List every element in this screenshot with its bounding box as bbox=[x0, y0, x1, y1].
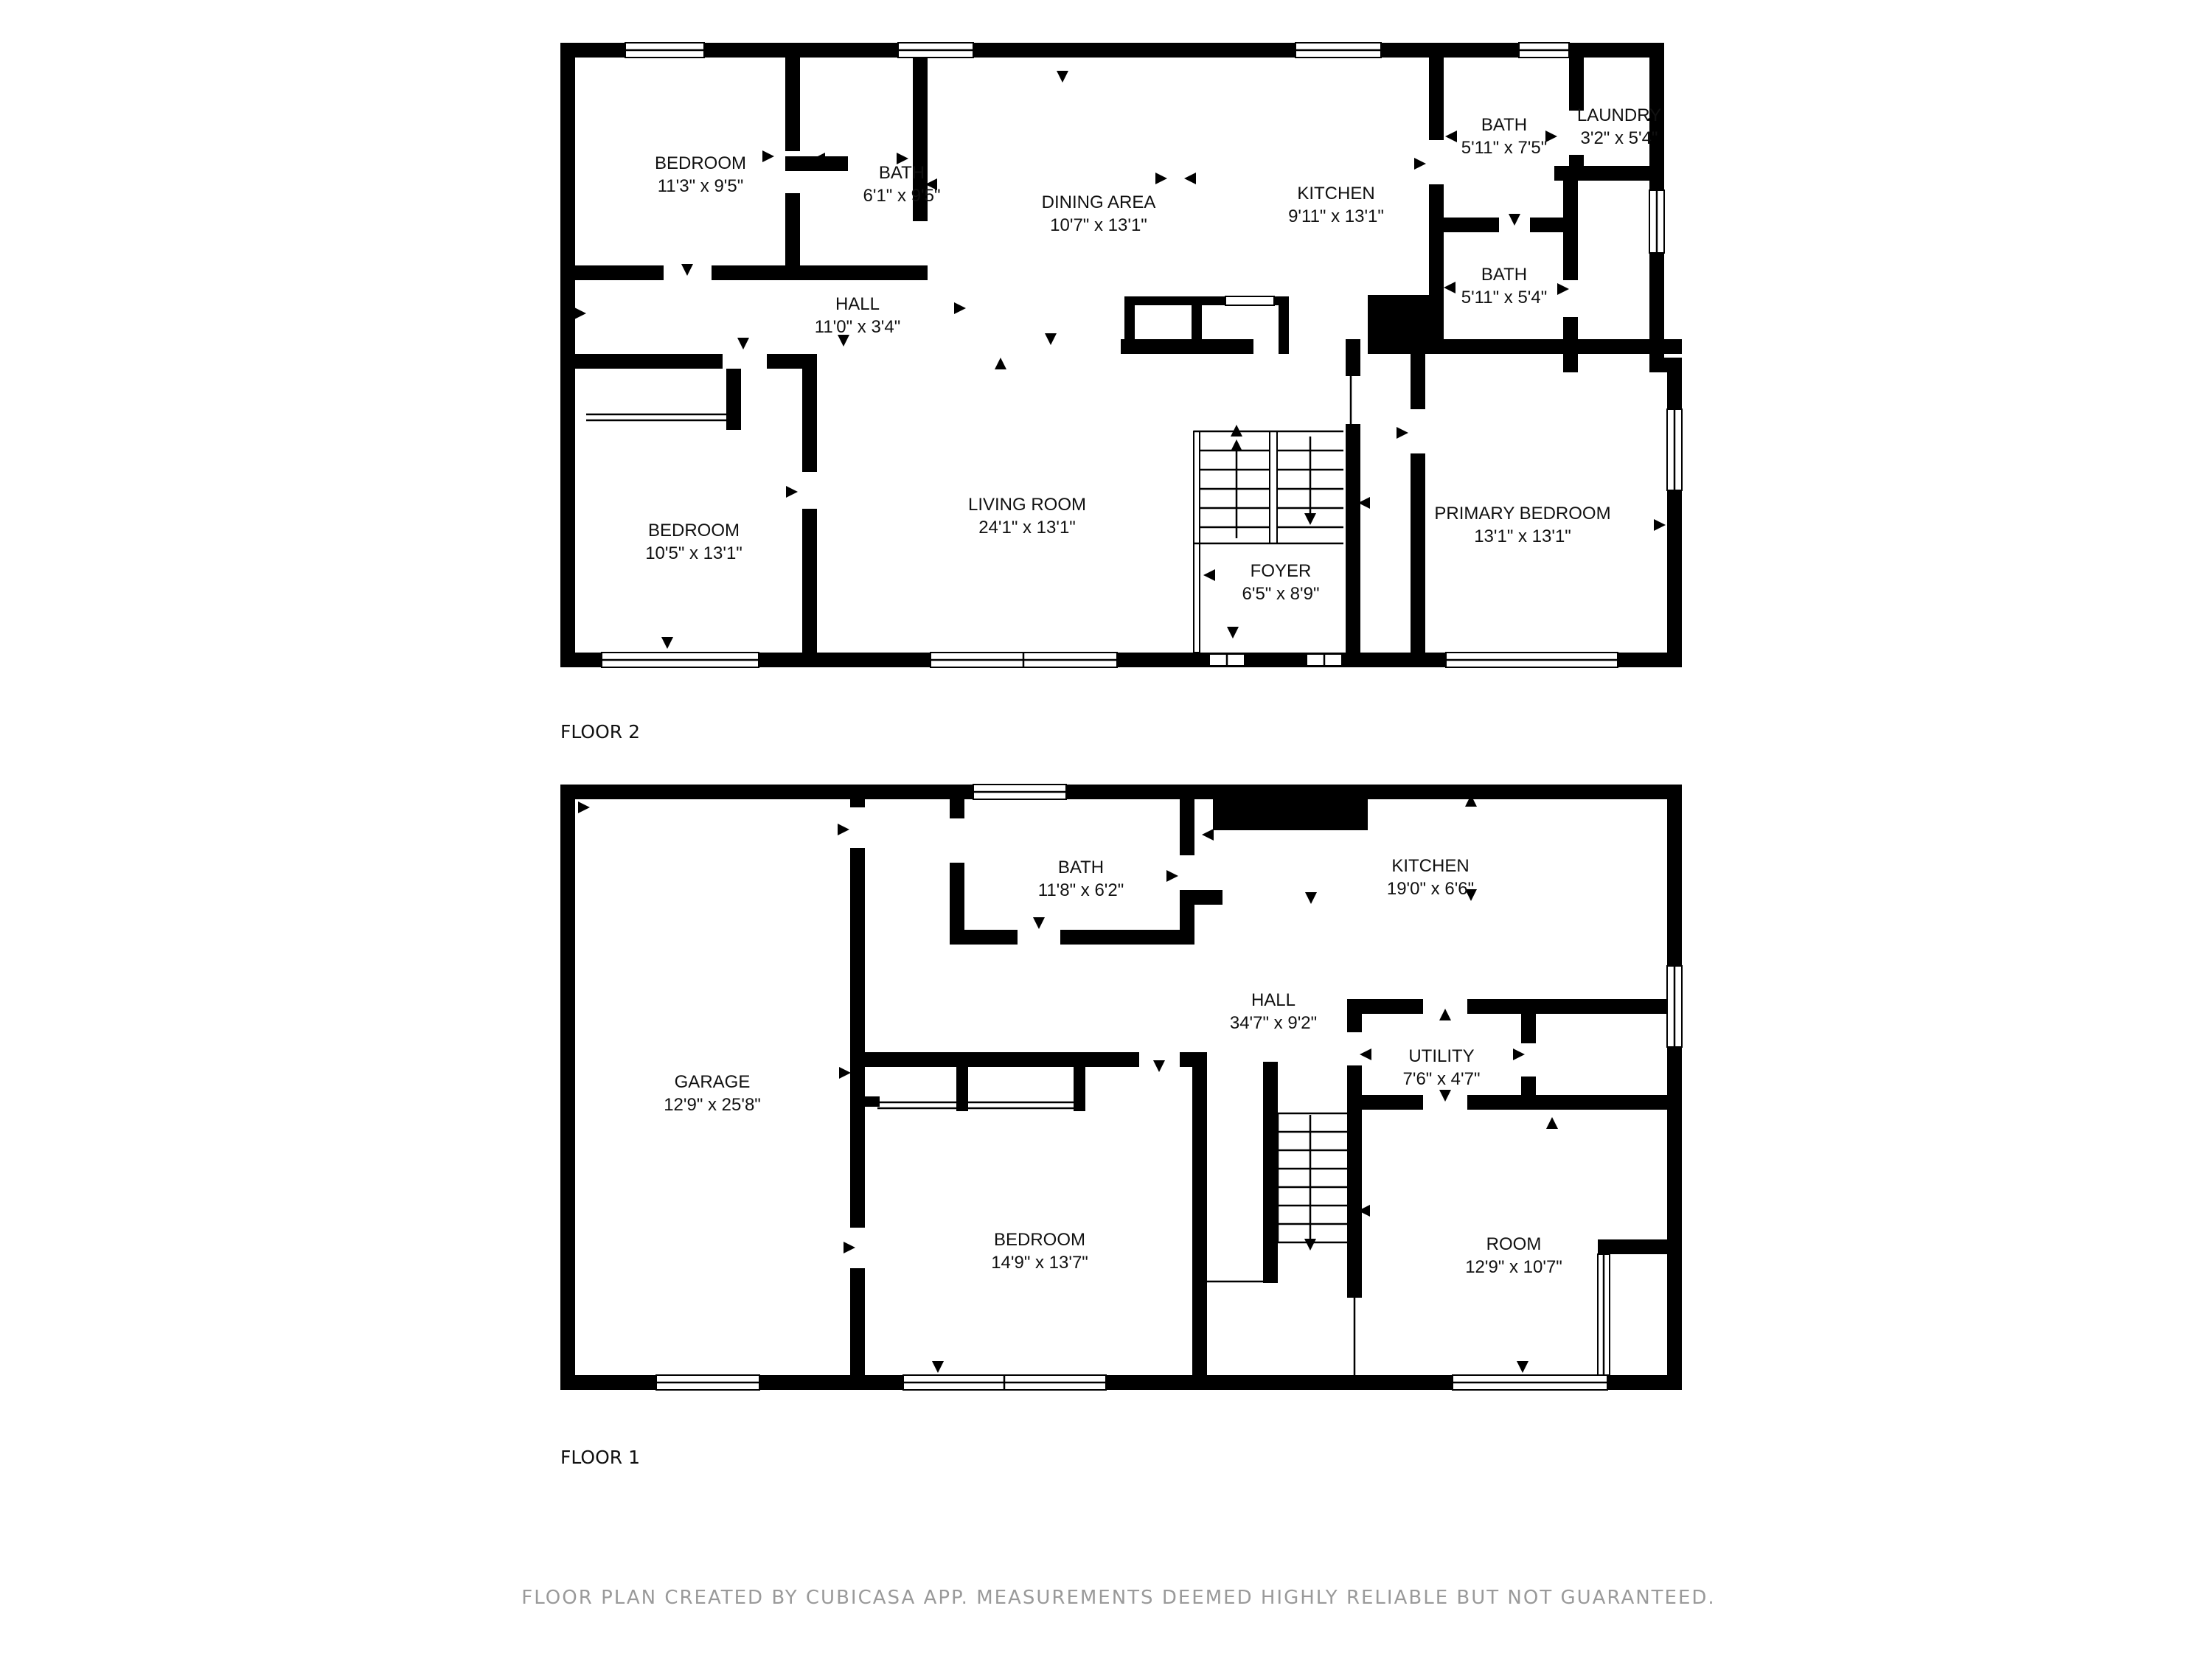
door-arrow-icon bbox=[1445, 131, 1457, 142]
window bbox=[1649, 190, 1664, 253]
door-arrow-icon bbox=[1513, 1048, 1525, 1060]
floor1-chimney-block bbox=[1213, 785, 1368, 830]
room-label-floor1-room: ROOM 12'9" x 10'7" bbox=[1465, 1233, 1562, 1279]
window bbox=[1295, 43, 1381, 58]
room-dims: 11'0" x 3'4" bbox=[815, 316, 901, 338]
window bbox=[898, 43, 973, 58]
room-dims: 9'11" x 13'1" bbox=[1288, 205, 1384, 228]
door-arrow-icon bbox=[1414, 158, 1426, 170]
door-arrow-icon bbox=[762, 150, 774, 162]
floor2-title: FLOOR 2 bbox=[560, 721, 640, 742]
closet-opening bbox=[1225, 296, 1274, 305]
door-arrow-icon bbox=[1184, 173, 1196, 184]
room-label-floor1-garage: GARAGE 12'9" x 25'8" bbox=[664, 1071, 761, 1116]
door-arrow-icon bbox=[1444, 282, 1455, 293]
room-label-floor2-bedroom-2: BEDROOM 10'5" x 13'1" bbox=[645, 519, 742, 565]
room-label-floor1-bath: BATH 11'8" x 6'2" bbox=[1038, 856, 1124, 902]
room-label-floor2-dining-area: DINING AREA 10'7" x 13'1" bbox=[1042, 191, 1156, 237]
window bbox=[1667, 409, 1682, 490]
room-label-floor2-laundry: LAUNDRY 3'2" x 5'4" bbox=[1577, 104, 1661, 150]
door-arrow-icon bbox=[1439, 1090, 1451, 1102]
room-name: HALL bbox=[815, 293, 901, 316]
room-name: BEDROOM bbox=[645, 519, 742, 542]
door-arrow-icon bbox=[932, 1361, 944, 1373]
door-arrow-icon bbox=[1305, 892, 1317, 904]
door-arrow-icon bbox=[1397, 427, 1408, 439]
room-label-floor2-primary-bedroom: PRIMARY BEDROOM 13'1" x 13'1" bbox=[1434, 502, 1610, 548]
room-name: LIVING ROOM bbox=[968, 493, 1086, 516]
window bbox=[1453, 1375, 1607, 1390]
room-label-floor1-utility: UTILITY 7'6" x 4'7" bbox=[1403, 1045, 1481, 1091]
room-name: ROOM bbox=[1465, 1233, 1562, 1256]
room-name: GARAGE bbox=[664, 1071, 761, 1093]
door-arrow-icon bbox=[838, 824, 849, 835]
room-dims: 6'5" x 8'9" bbox=[1242, 582, 1320, 605]
door-arrow-icon bbox=[1557, 283, 1569, 295]
room-dims: 10'7" x 13'1" bbox=[1042, 214, 1156, 237]
door-arrow-icon bbox=[1360, 1048, 1371, 1060]
room-label-floor2-hall: HALL 11'0" x 3'4" bbox=[815, 293, 901, 338]
stairs-down-arrow-icon bbox=[1304, 513, 1316, 525]
room-label-floor1-hall: HALL 34'7" x 9'2" bbox=[1230, 989, 1317, 1034]
window bbox=[625, 43, 704, 58]
floor-plan-page: BEDROOM 11'3" x 9'5" BATH 6'1" x 9'5" DI… bbox=[0, 0, 2212, 1659]
garage-door-opening bbox=[656, 1375, 759, 1390]
room-dims: 19'0" x 6'6" bbox=[1387, 877, 1474, 900]
room-dims: 10'5" x 13'1" bbox=[645, 542, 742, 565]
floor-plan-drawing bbox=[0, 0, 2212, 1659]
door-arrow-icon bbox=[737, 338, 749, 349]
room-name: BEDROOM bbox=[655, 152, 746, 175]
room-name: DINING AREA bbox=[1042, 191, 1156, 214]
door-arrow-icon bbox=[839, 1067, 851, 1079]
room-dims: 12'9" x 25'8" bbox=[664, 1093, 761, 1116]
door-arrow-icon bbox=[1203, 569, 1215, 581]
room-name: BEDROOM bbox=[991, 1228, 1088, 1251]
window bbox=[903, 1375, 1106, 1390]
room-label-floor2-bedroom-1: BEDROOM 11'3" x 9'5" bbox=[655, 152, 746, 198]
room-dims: 13'1" x 13'1" bbox=[1434, 525, 1610, 548]
room-dims: 5'11" x 7'5" bbox=[1461, 136, 1548, 159]
door-arrow-icon bbox=[1166, 870, 1178, 882]
door-arrow-icon bbox=[1546, 1117, 1558, 1129]
floor2-closet-sliding-doors bbox=[586, 414, 726, 420]
door-arrow-icon bbox=[1045, 333, 1057, 345]
door-arrow-icon bbox=[786, 486, 798, 498]
door-arrow-icon bbox=[1153, 1060, 1165, 1072]
door-arrow-icon bbox=[1654, 519, 1666, 531]
room-name: LAUNDRY bbox=[1577, 104, 1661, 127]
room-dims: 6'1" x 9'5" bbox=[863, 184, 941, 207]
door-arrow-icon bbox=[954, 302, 966, 314]
room-dims: 34'7" x 9'2" bbox=[1230, 1012, 1317, 1034]
window bbox=[931, 653, 1117, 667]
door-arrow-icon bbox=[1509, 214, 1520, 226]
door-arrow-icon bbox=[1057, 71, 1068, 83]
room-label-floor2-living-room: LIVING ROOM 24'1" x 13'1" bbox=[968, 493, 1086, 539]
room-name: KITCHEN bbox=[1387, 855, 1474, 877]
floor2-staircase bbox=[1194, 369, 1351, 653]
stairs-down-arrow-icon bbox=[1304, 1239, 1316, 1251]
room-name: BATH bbox=[1461, 114, 1548, 136]
window bbox=[1598, 1254, 1610, 1375]
room-dims: 14'9" x 13'7" bbox=[991, 1251, 1088, 1274]
room-label-floor2-bath-1: BATH 6'1" x 9'5" bbox=[863, 161, 941, 207]
door-arrow-icon bbox=[1227, 627, 1239, 639]
door-arrow-icon bbox=[681, 264, 693, 276]
room-dims: 11'8" x 6'2" bbox=[1038, 879, 1124, 902]
door-arrow-icon bbox=[661, 637, 673, 649]
room-label-floor1-bedroom: BEDROOM 14'9" x 13'7" bbox=[991, 1228, 1088, 1274]
room-label-floor2-kitchen: KITCHEN 9'11" x 13'1" bbox=[1288, 182, 1384, 228]
room-name: BATH bbox=[1461, 263, 1548, 286]
door-arrow-icon bbox=[1439, 1009, 1451, 1020]
room-dims: 12'9" x 10'7" bbox=[1465, 1256, 1562, 1279]
door-arrow-icon bbox=[578, 801, 590, 813]
door-arrow-icon bbox=[995, 358, 1006, 369]
room-name: BATH bbox=[863, 161, 941, 184]
window bbox=[973, 785, 1066, 799]
room-dims: 3'2" x 5'4" bbox=[1577, 127, 1661, 150]
door-panel bbox=[1209, 654, 1245, 666]
room-dims: 5'11" x 5'4" bbox=[1461, 286, 1548, 309]
room-label-floor2-foyer: FOYER 6'5" x 8'9" bbox=[1242, 560, 1320, 605]
room-dims: 24'1" x 13'1" bbox=[968, 516, 1086, 539]
room-name: KITCHEN bbox=[1288, 182, 1384, 205]
room-name: FOYER bbox=[1242, 560, 1320, 582]
stairs-up-arrow-icon bbox=[1231, 439, 1242, 451]
room-dims: 7'6" x 4'7" bbox=[1403, 1068, 1481, 1091]
footer-disclaimer: FLOOR PLAN CREATED BY CUBICASA APP. MEAS… bbox=[521, 1587, 1715, 1609]
floor2-chimney-block bbox=[1368, 295, 1438, 354]
room-label-floor1-kitchen: KITCHEN 19'0" x 6'6" bbox=[1387, 855, 1474, 900]
room-label-floor2-bath-2: BATH 5'11" x 7'5" bbox=[1461, 114, 1548, 159]
window bbox=[1667, 966, 1682, 1047]
room-label-floor2-bath-3: BATH 5'11" x 5'4" bbox=[1461, 263, 1548, 309]
room-dims: 11'3" x 9'5" bbox=[655, 175, 746, 198]
door-panel bbox=[1307, 654, 1342, 666]
room-name: BATH bbox=[1038, 856, 1124, 879]
room-name: UTILITY bbox=[1403, 1045, 1481, 1068]
door-arrow-icon bbox=[1202, 829, 1214, 841]
floor1-title: FLOOR 1 bbox=[560, 1447, 640, 1468]
window bbox=[1519, 43, 1569, 58]
door-arrow-icon bbox=[844, 1242, 855, 1253]
room-name: HALL bbox=[1230, 989, 1317, 1012]
room-name: PRIMARY BEDROOM bbox=[1434, 502, 1610, 525]
door-arrow-icon bbox=[1155, 173, 1167, 184]
window bbox=[602, 653, 759, 667]
door-arrow-icon bbox=[1517, 1361, 1528, 1373]
floor1-staircase bbox=[1278, 1113, 1347, 1251]
window bbox=[1446, 653, 1618, 667]
floor1-closet-sliding-doors bbox=[877, 1102, 1354, 1375]
door-arrow-icon bbox=[574, 307, 586, 319]
door-arrow-icon bbox=[1545, 131, 1557, 142]
door-arrow-icon bbox=[1033, 917, 1045, 929]
